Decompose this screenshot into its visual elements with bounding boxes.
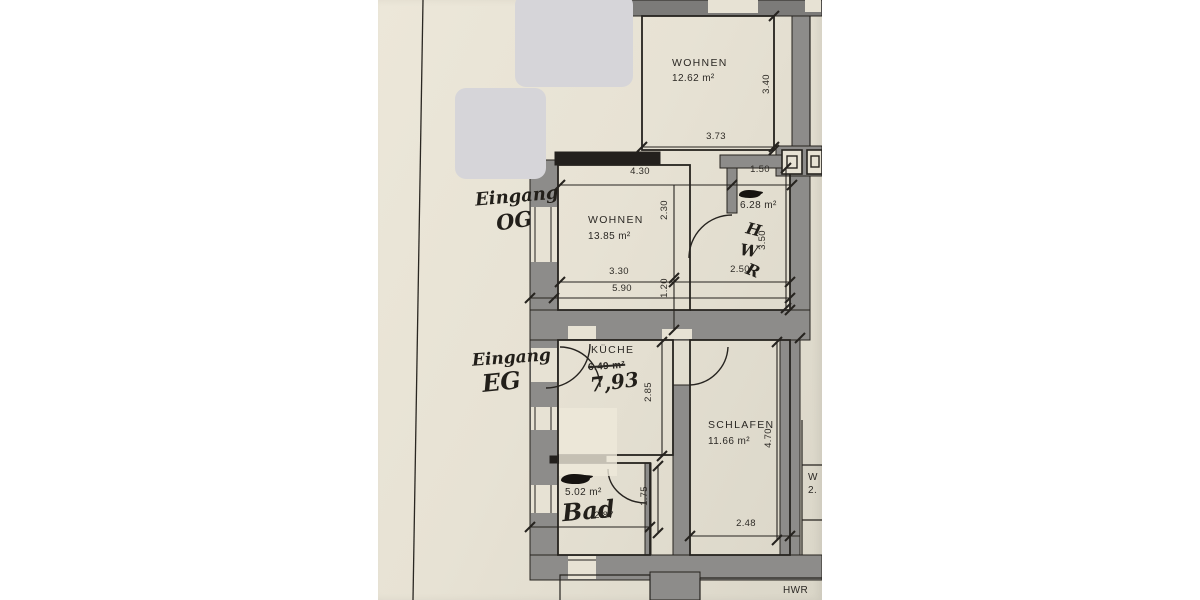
room-area-schlafen: 11.66 m² [708, 436, 750, 447]
handwritten-kueche-area: 7,93 [589, 369, 640, 395]
room-label-wohnen-og: WOHNEN [588, 215, 644, 227]
handwritten-eingang-og-line2: OG [495, 208, 534, 234]
dim-1-50: 1.50 [738, 165, 782, 175]
wall-right-upper [792, 16, 810, 146]
shaft-symbols [782, 150, 822, 174]
room-label-kueche: KÜCHE [591, 345, 634, 357]
room-area-wohnen-og: 13.85 m² [588, 231, 631, 242]
wall-kueche-schlafen-divider [673, 385, 690, 555]
wall-hwr-stub [727, 168, 737, 213]
right-partial-label-2: 2. [808, 485, 817, 496]
dim-3-40: 3.40 [762, 69, 774, 99]
hall-notch-1 [568, 326, 596, 339]
room-label-hwr-eg: HWR [783, 585, 808, 596]
wall-top-notch [708, 0, 758, 13]
door-arc-hwr [689, 215, 732, 258]
dim-3-30: 3.30 [597, 267, 641, 277]
outline-hwr-og [690, 168, 790, 310]
room-label-wohnen-top: WOHNEN [672, 58, 728, 70]
dim-3-73: 3.73 [694, 132, 738, 142]
dim-1-75: 1.75 [640, 481, 652, 511]
dim-5-90: 5.90 [600, 284, 644, 294]
room-area-wohnen-top: 12.62 m² [672, 73, 715, 84]
redaction-sticker-left [455, 88, 546, 179]
sheet-border-line [413, 0, 423, 600]
floor-plan-photo: WOHNEN 12.62 m² WOHNEN 13.85 m² 6.28 m² … [378, 0, 822, 600]
wall-top-notch-2 [805, 0, 821, 12]
dim-4-30: 4.30 [618, 167, 662, 177]
handwritten-bad: Bad [561, 497, 616, 525]
dim-2-30: 2.30 [660, 195, 672, 225]
door-arc-schlafen [690, 347, 728, 385]
redaction-sticker-top [515, 0, 633, 87]
wall-right-mid [790, 176, 810, 310]
shaft-symbol-2 [807, 150, 822, 174]
wall-black-new [555, 152, 660, 165]
right-partial-label-1: W [808, 472, 818, 483]
dim-4-70: 4.70 [764, 423, 776, 453]
screenshot: WOHNEN 12.62 m² WOHNEN 13.85 m² 6.28 m² … [0, 0, 1200, 600]
handwritten-eingang-eg-line2: EG [481, 368, 522, 396]
handwritten-hwr-w: W [739, 242, 759, 260]
dim-2-48: 2.48 [724, 519, 768, 529]
paper-patch [559, 408, 617, 476]
dim-1-20: 1.20 [660, 273, 672, 303]
room-area-hwr-og: 6.28 m² [740, 200, 777, 211]
wall-lower-chunk [650, 572, 700, 600]
dim-2-85: 2.85 [644, 377, 656, 407]
